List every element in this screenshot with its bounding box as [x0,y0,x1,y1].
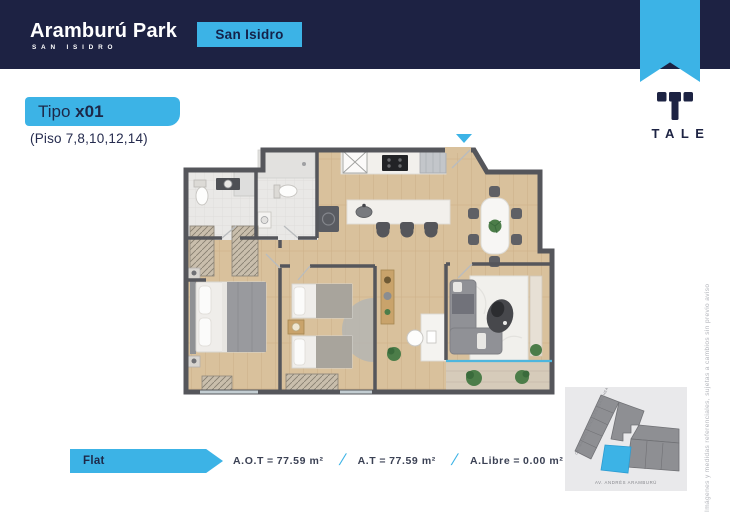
equals-sign: = [379,455,386,467]
area-at-value: 77.59 m² [389,455,436,467]
area-at-label: A.T [358,455,377,467]
brand-subtitle: SAN ISIDRO [32,44,177,51]
area-libre-label: A.Libre [470,455,510,467]
location-mini-map: AV. ANDRÉS ARAMBURÚ CA. MANUEL GONZALES … [565,387,687,491]
tale-logo-text: TALE [645,126,705,141]
floors-note: (Piso 7,8,10,12,14) [30,131,148,146]
highlighted-unit [601,445,631,473]
area-libre-value: 0.00 m² [523,455,563,467]
slash-separator: / [338,452,346,470]
unit-type-code: x01 [75,102,103,121]
slash-separator: / [451,452,459,470]
developer-logo: TALE [645,92,705,141]
brand-lockup: Aramburú Park SAN ISIDRO [30,20,177,51]
area-aot-label: A.O.T [233,455,264,467]
area-measurements: A.O.T=77.59 m² / A.T=77.59 m² / A.Libre=… [233,449,566,473]
area-aot-value: 77.59 m² [277,455,324,467]
unit-category-tag: Flat [70,449,223,473]
unit-type-prefix: Tipo [38,102,75,121]
area-at: A.T=77.59 m² [358,455,439,467]
floorplan-image [178,136,558,402]
unit-type-title: Tipo x01 [25,97,180,126]
location-badge: San Isidro [197,22,302,47]
equals-sign: = [513,455,520,467]
disclaimer-text: Imágenes y medidas referenciales, sujeta… [704,288,718,512]
tale-t-icon [657,92,693,121]
bookmark-ribbon-icon [640,0,700,82]
area-libre: A.Libre=0.00 m² [470,455,567,467]
area-aot: A.O.T=77.59 m² [233,455,327,467]
brand-name: Aramburú Park [30,20,177,42]
street-label-bottom: AV. ANDRÉS ARAMBURÚ [595,480,657,485]
equals-sign: = [267,455,274,467]
